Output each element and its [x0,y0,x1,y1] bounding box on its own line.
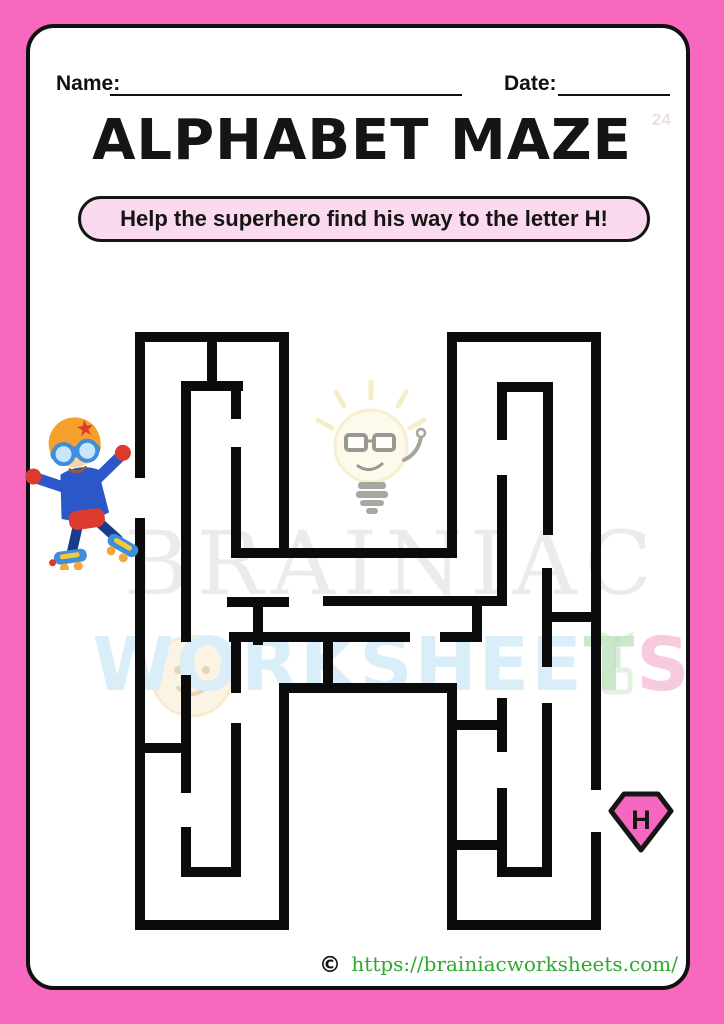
name-input-line[interactable] [110,94,462,96]
corner-number: 24 [652,110,671,130]
roller-skate-right [101,532,140,567]
date-label: Date: [504,72,557,96]
superhero-character [22,400,140,570]
green-sprout-doodle [592,628,642,698]
instruction-pill: Help the superhero find his way to the l… [78,196,650,242]
roller-skate-left [48,548,89,570]
instruction-text: Help the superhero find his way to the l… [120,206,608,232]
watermark-worksheets-main: WORKSHEE [93,622,584,708]
header-row: Name: Date: [0,72,724,102]
page-title: ALPHABET MAZE [0,108,724,173]
goal-letter-gem: H [606,789,676,855]
name-label: Name: [56,72,120,96]
footer: © https://brainiacworksheets.com/ [0,952,678,978]
date-input-line[interactable] [558,94,670,96]
page-frame: BRAINIAC WORKSHEETS Name: Date: ALPHABET… [0,0,724,1024]
footer-url-link[interactable]: https://brainiacworksheets.com/ [351,952,678,976]
goal-letter: H [631,805,651,835]
watermark-worksheets-s: S [636,622,691,708]
copyright-icon: © [319,953,341,978]
lightbulb-mascot-doodle [306,378,436,528]
